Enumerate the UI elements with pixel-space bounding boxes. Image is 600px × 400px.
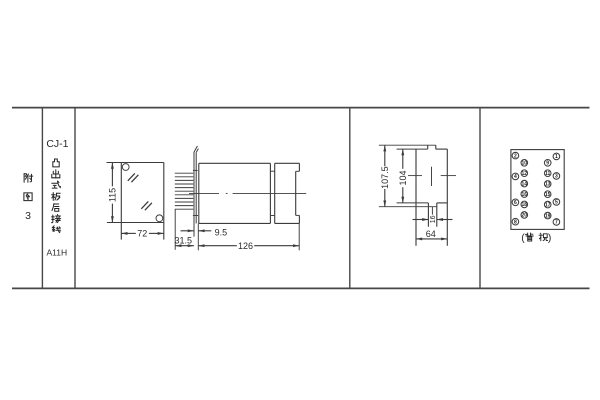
svg-text:3: 3 [25, 210, 31, 222]
svg-text:9: 9 [546, 161, 549, 167]
svg-text:3: 3 [555, 174, 558, 180]
svg-text:6: 6 [514, 200, 517, 206]
svg-text:5: 5 [555, 200, 558, 206]
svg-text:12: 12 [522, 171, 528, 177]
svg-text:13: 13 [545, 182, 551, 188]
svg-text:2: 2 [514, 153, 517, 159]
svg-text:10: 10 [522, 161, 528, 167]
svg-text:16: 16 [430, 215, 437, 223]
svg-text:7: 7 [555, 220, 558, 226]
svg-text:72: 72 [137, 229, 147, 239]
svg-text:11: 11 [545, 171, 551, 177]
svg-text:16: 16 [522, 192, 528, 198]
svg-text:1: 1 [555, 154, 558, 160]
svg-text:9.5: 9.5 [215, 227, 228, 237]
svg-text:20: 20 [522, 213, 528, 219]
svg-text:107.5: 107.5 [380, 166, 390, 189]
svg-text:15: 15 [545, 192, 551, 198]
svg-text:19: 19 [545, 213, 551, 219]
svg-text:A11H: A11H [46, 248, 67, 258]
svg-text:104: 104 [398, 170, 408, 185]
svg-text:4: 4 [514, 174, 517, 180]
svg-text:64: 64 [426, 229, 436, 239]
svg-text:115: 115 [108, 188, 118, 202]
svg-text:18: 18 [522, 202, 528, 208]
svg-text:14: 14 [522, 181, 528, 187]
svg-text:): ) [548, 232, 552, 244]
svg-text:31.5: 31.5 [175, 235, 193, 245]
svg-text:17: 17 [545, 202, 551, 208]
svg-text:CJ-1: CJ-1 [46, 138, 68, 150]
svg-text:(: ( [521, 232, 525, 244]
svg-text:8: 8 [514, 220, 517, 226]
svg-text:126: 126 [238, 241, 253, 251]
